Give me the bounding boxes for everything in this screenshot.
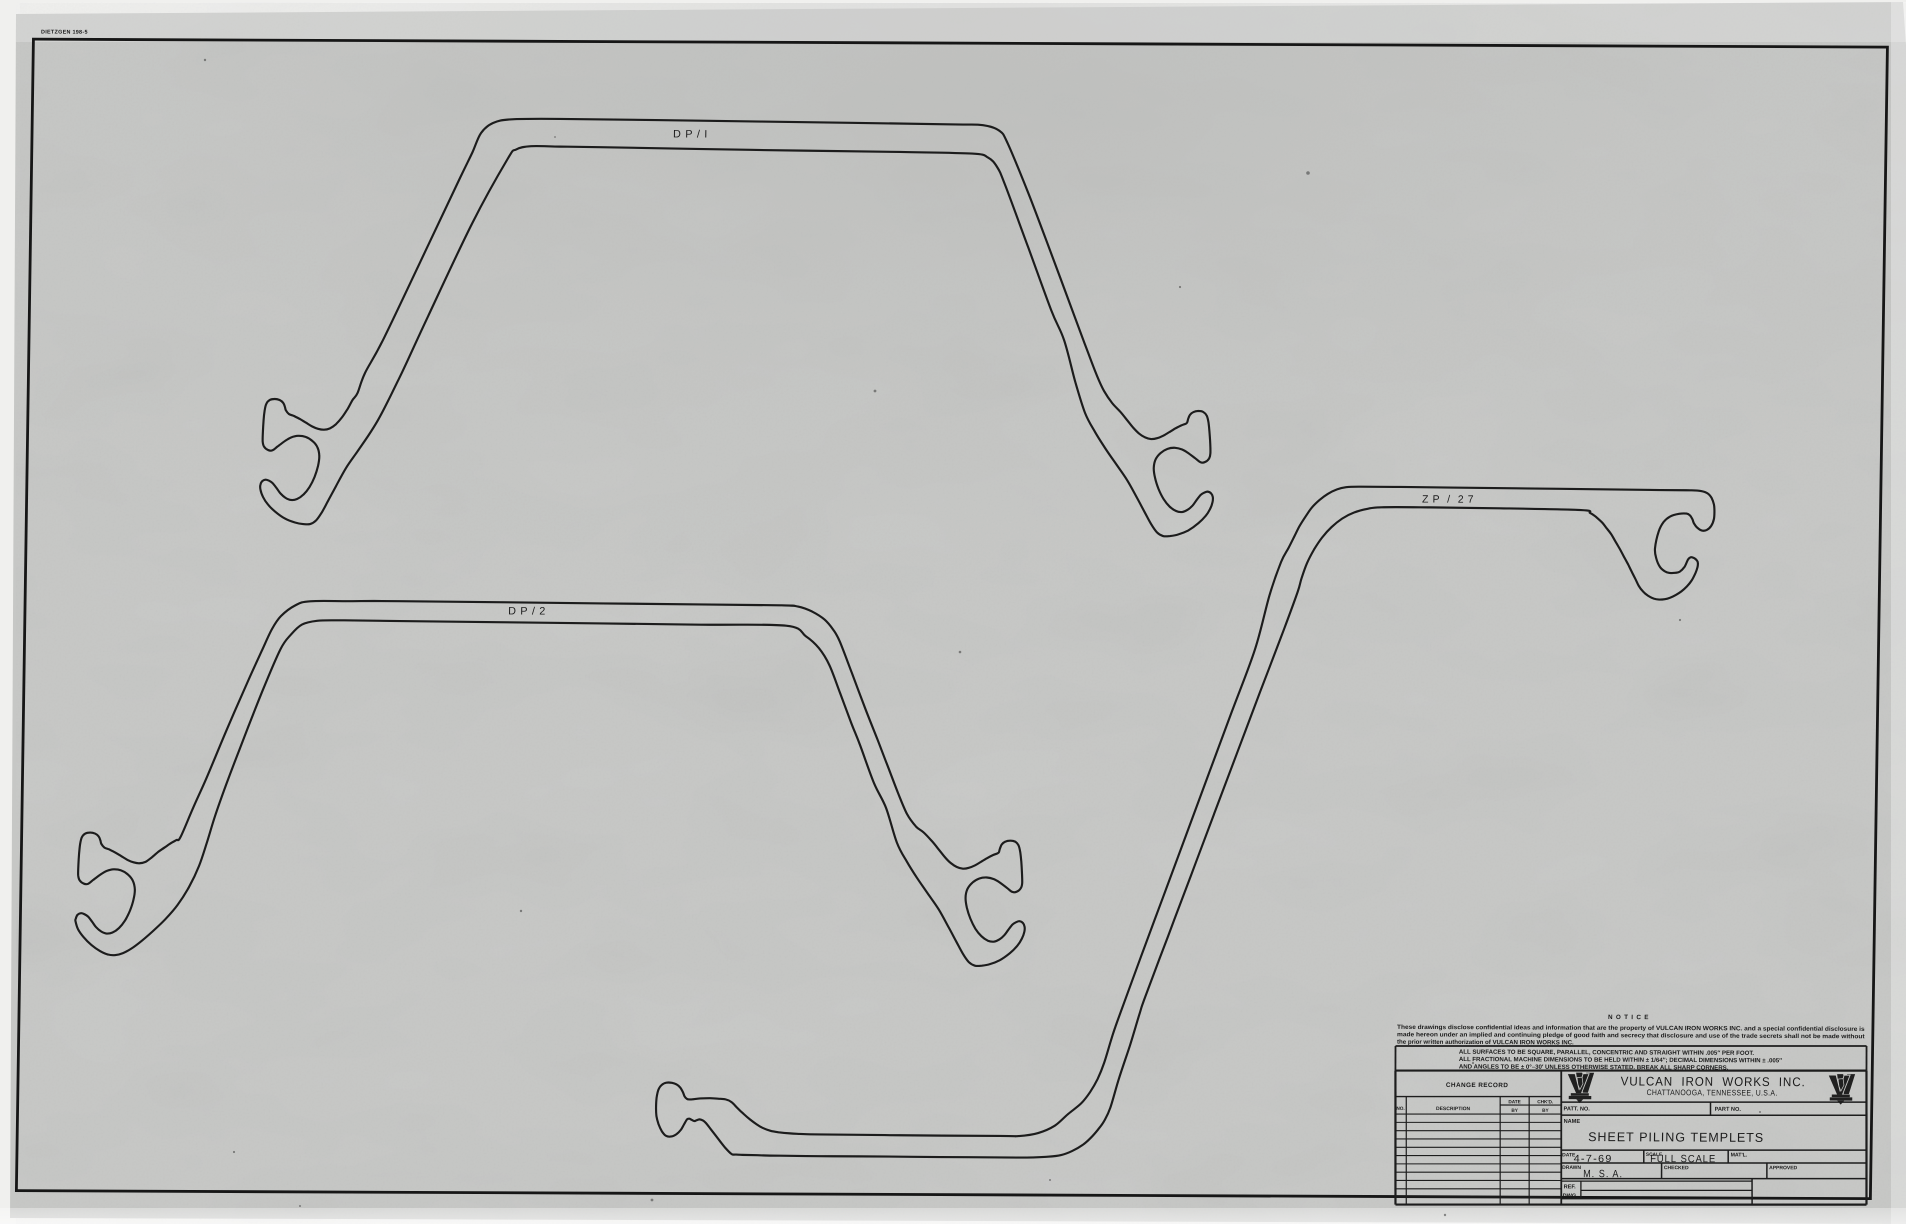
svg-text:PART NO.: PART NO. bbox=[1715, 1107, 1742, 1113]
svg-text:MAT'L.: MAT'L. bbox=[1731, 1152, 1748, 1158]
svg-text:DIETZGEN 198-5: DIETZGEN 198-5 bbox=[41, 29, 88, 35]
svg-text:DWG.: DWG. bbox=[1563, 1193, 1579, 1199]
svg-text:DRAWN: DRAWN bbox=[1562, 1165, 1581, 1171]
svg-text:CHATTANOOGA, TENNESSEE, U.S.A.: CHATTANOOGA, TENNESSEE, U.S.A. bbox=[1647, 1088, 1778, 1098]
svg-text:CHANGE RECORD: CHANGE RECORD bbox=[1446, 1082, 1508, 1089]
svg-text:PATT. NO.: PATT. NO. bbox=[1564, 1106, 1591, 1112]
svg-text:BY: BY bbox=[1511, 1108, 1518, 1113]
svg-text:APPROVED: APPROVED bbox=[1769, 1165, 1798, 1171]
svg-text:VULCAN IRON WORKS INC.: VULCAN IRON WORKS INC. bbox=[1621, 1074, 1806, 1089]
svg-text:DESCRIPTION: DESCRIPTION bbox=[1436, 1106, 1471, 1112]
svg-text:CHK'D.: CHK'D. bbox=[1537, 1099, 1553, 1104]
svg-text:D P / I: D P / I bbox=[673, 128, 708, 140]
svg-text:CHECKED: CHECKED bbox=[1664, 1165, 1689, 1171]
svg-text:NO.: NO. bbox=[1396, 1106, 1404, 1111]
svg-text:NAME: NAME bbox=[1564, 1119, 1581, 1125]
svg-text:N O T I C E: N O T I C E bbox=[1608, 1014, 1649, 1021]
svg-text:SHEET PILING TEMPLETS: SHEET PILING TEMPLETS bbox=[1588, 1129, 1764, 1145]
svg-text:DATE: DATE bbox=[1508, 1099, 1520, 1104]
svg-text:REF.: REF. bbox=[1564, 1184, 1577, 1190]
svg-text:BY: BY bbox=[1542, 1108, 1549, 1113]
svg-text:D P / 2: D P / 2 bbox=[508, 605, 546, 617]
svg-text:Z P / 2 7: Z P / 2 7 bbox=[1422, 493, 1474, 505]
